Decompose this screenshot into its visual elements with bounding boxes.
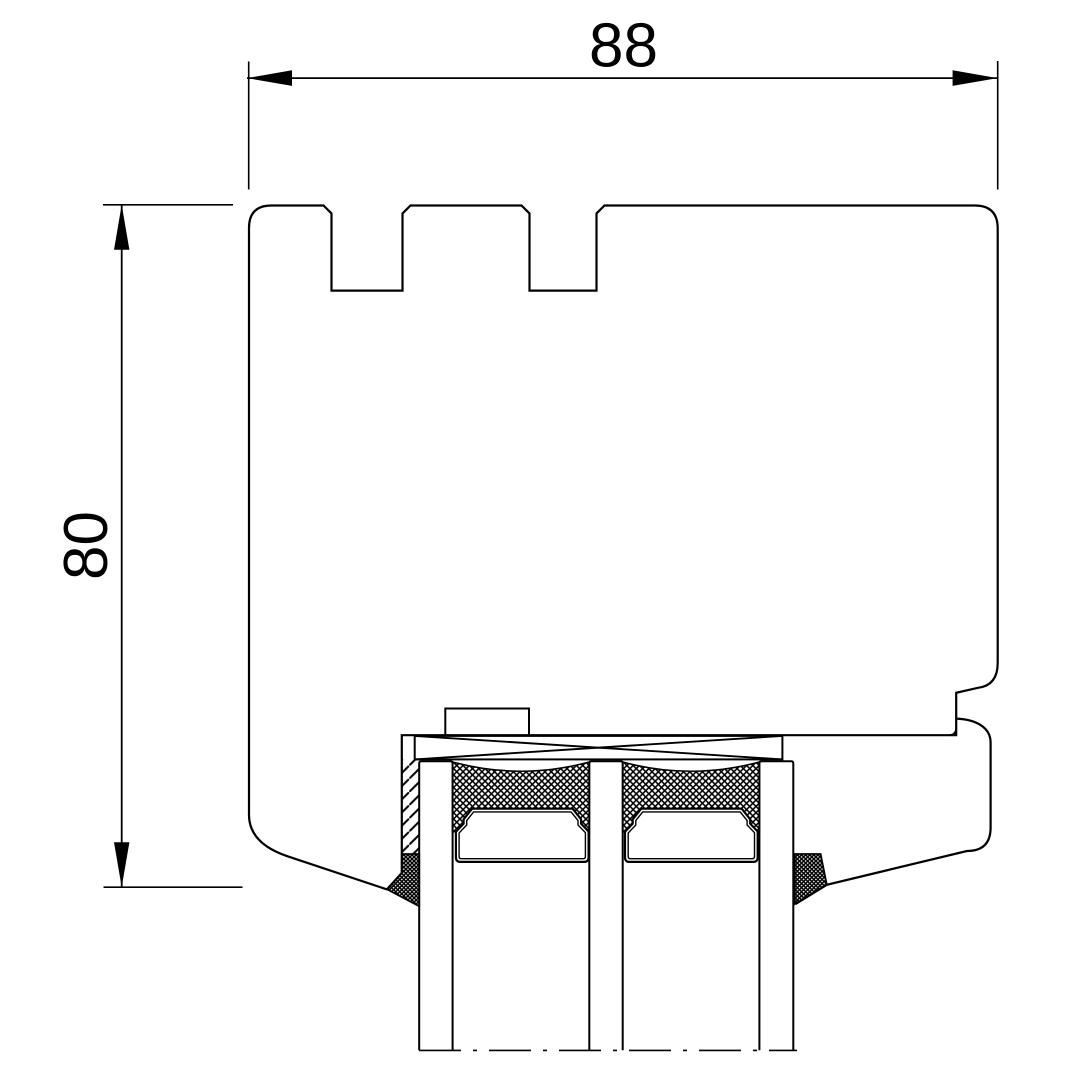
svg-text:88: 88: [589, 11, 658, 80]
svg-text:80: 80: [52, 511, 121, 580]
